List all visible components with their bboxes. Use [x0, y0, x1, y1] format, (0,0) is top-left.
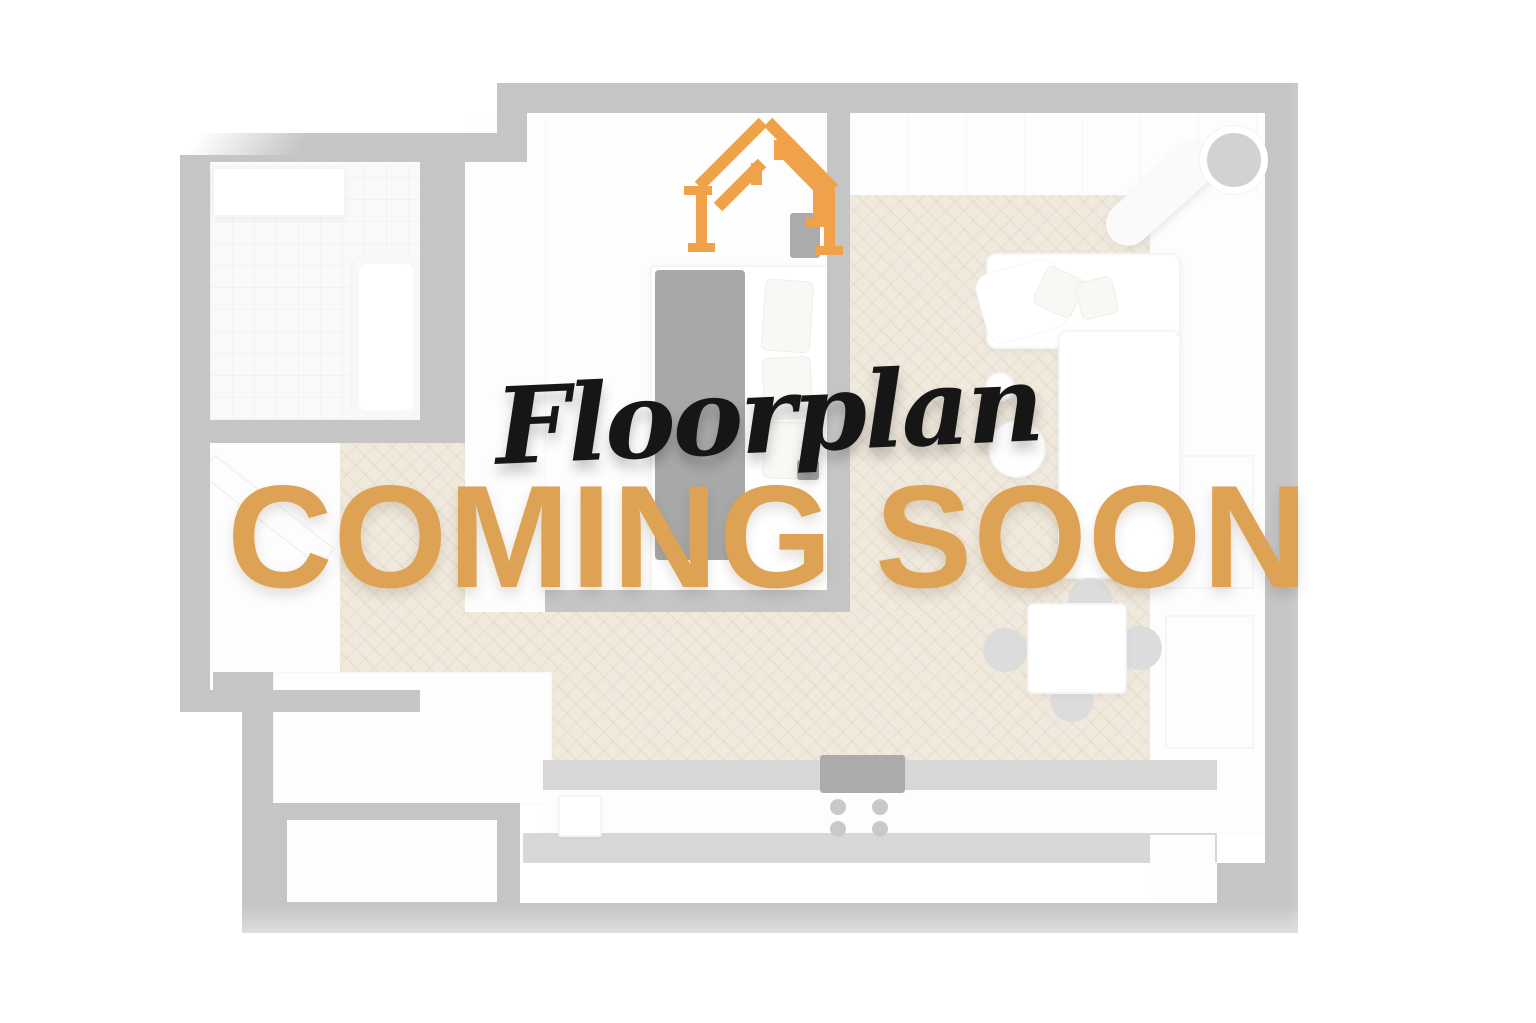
- bed-pillow: [761, 278, 815, 353]
- wall-top-left: [188, 133, 500, 162]
- wall-left-lower: [242, 710, 273, 933]
- wall-entry-bottom: [180, 690, 420, 712]
- burner: [830, 799, 846, 815]
- kitchen-base: [523, 833, 1217, 863]
- wall-bottom-right-step: [1217, 863, 1298, 933]
- kitchen-end-step: [1150, 835, 1215, 903]
- wardrobe-door: [1165, 615, 1254, 749]
- burner: [872, 799, 888, 815]
- round-pillar: [1200, 126, 1268, 194]
- fade-top: [0, 0, 1536, 70]
- cooktop: [820, 755, 905, 793]
- wall-top-main: [497, 83, 1298, 113]
- kitchen-sink: [558, 795, 602, 837]
- roof-monogram-icon: [683, 113, 848, 263]
- bathroom-vanity: [212, 167, 346, 217]
- coming-soon-placeholder: Floorplan COMING SOON: [0, 0, 1536, 1023]
- burner: [872, 821, 888, 837]
- storage-room: [287, 820, 497, 902]
- wall-bottom: [242, 903, 1298, 933]
- dining-chair: [983, 628, 1027, 672]
- burner: [830, 821, 846, 837]
